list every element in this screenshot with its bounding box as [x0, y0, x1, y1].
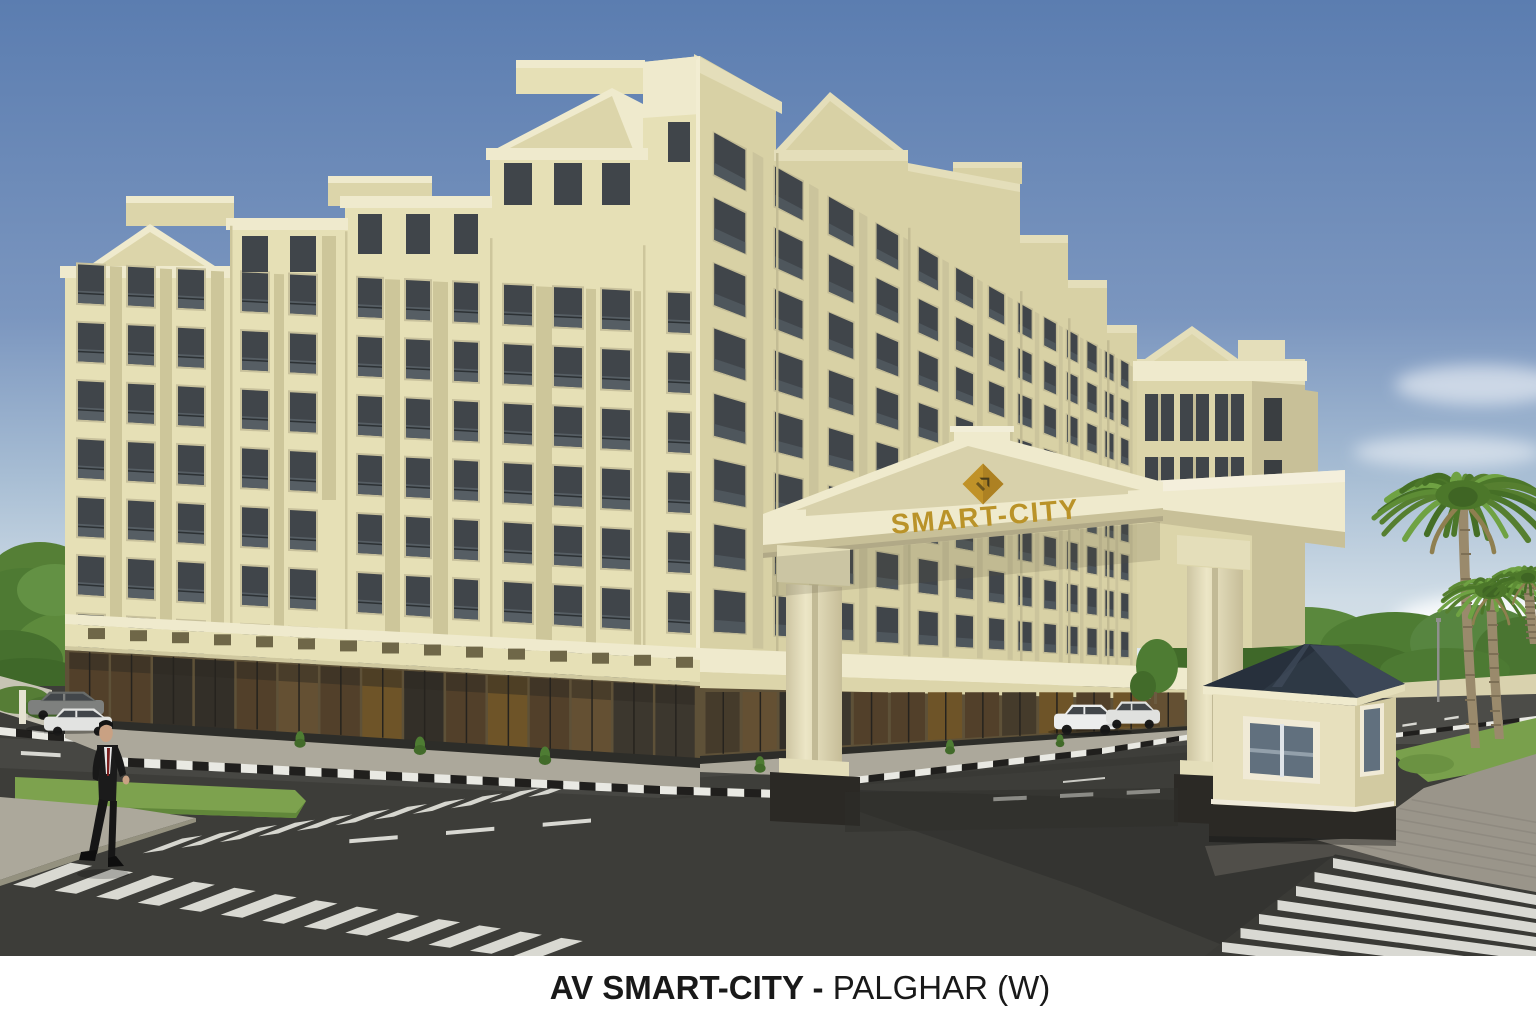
svg-text:AV SMART-CITY - PALGHAR (W): AV SMART-CITY - PALGHAR (W): [550, 969, 1051, 1006]
